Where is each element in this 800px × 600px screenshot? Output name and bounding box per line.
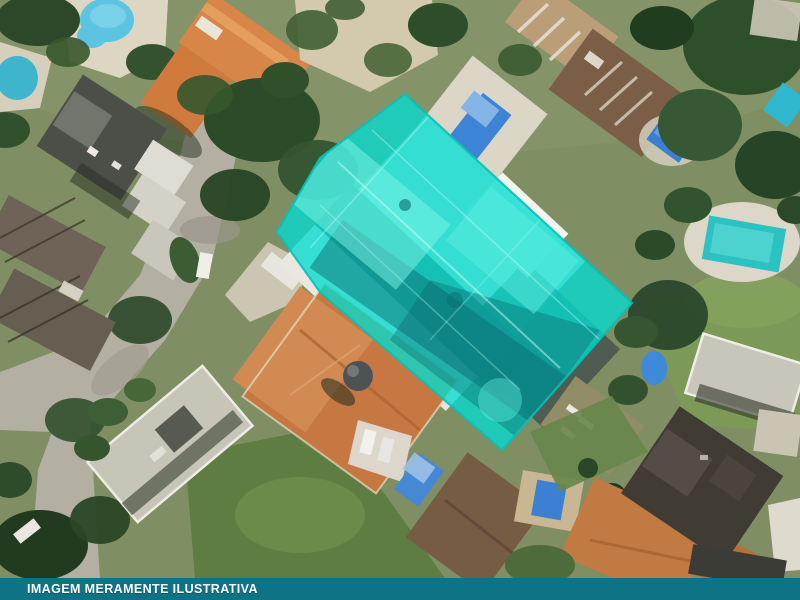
hedge — [124, 378, 156, 402]
tree-canopy — [108, 296, 172, 344]
tree-canopy — [261, 62, 309, 98]
lot-bright-spot — [478, 378, 522, 422]
lot-dark-speck — [447, 292, 463, 308]
tree-canopy — [635, 230, 675, 260]
tree-canopy — [408, 3, 468, 47]
pale-building — [750, 0, 800, 41]
lawn-bright-patch — [235, 477, 365, 553]
hedge — [74, 435, 110, 461]
palm-tree — [578, 458, 598, 478]
tree-canopy — [498, 44, 542, 76]
roof-dome — [343, 361, 373, 391]
caption-text: IMAGEM MERAMENTE ILUSTRATIVA — [27, 582, 258, 596]
tree-canopy — [664, 187, 712, 223]
tree-canopy — [46, 37, 90, 67]
tree-canopy — [630, 6, 694, 50]
listing-image: IMAGEM MERAMENTE ILUSTRATIVA — [0, 0, 800, 600]
swimming-pool — [641, 351, 667, 385]
tree-canopy — [364, 43, 412, 77]
pale-building — [753, 409, 800, 457]
tree-canopy — [200, 169, 270, 221]
roof-dome-highlight — [347, 365, 359, 377]
tree-canopy — [614, 316, 658, 348]
lot-dark-speck — [399, 199, 411, 211]
pool-water-highlight — [90, 4, 126, 28]
tree-canopy — [658, 89, 742, 161]
hedge — [88, 398, 128, 426]
white-facade — [700, 455, 708, 460]
caption-bar: IMAGEM MERAMENTE ILUSTRATIVA — [0, 578, 800, 600]
aerial-satellite-photo — [0, 0, 800, 578]
tree-canopy — [177, 75, 233, 115]
